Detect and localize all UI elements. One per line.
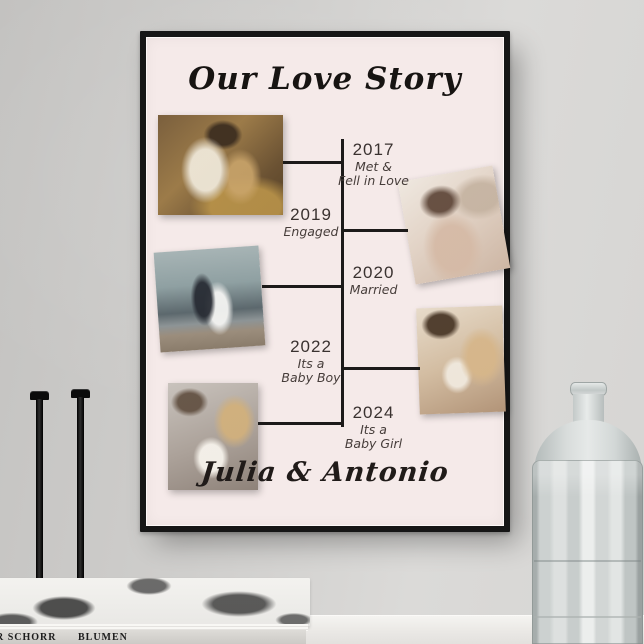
glass-bottle: [532, 382, 644, 644]
book-cover-ink-pattern: [0, 578, 310, 626]
timeline-entry-2019: 2019 Engaged: [261, 205, 361, 239]
couple-names: Julia & Antonio: [144, 457, 505, 488]
timeline-year: 2020: [326, 263, 421, 283]
candle-stem: [77, 397, 84, 591]
love-story-poster: Our Love Story 2017 Met & Fell in Love 2…: [146, 37, 504, 526]
timeline-year: 2019: [261, 205, 361, 225]
timeline-entry-2022: 2022 Its a Baby Boy: [261, 337, 361, 385]
timeline-entry-2024: 2024 Its a Baby Girl: [326, 403, 421, 451]
photo-2022-baby-kiss: [416, 306, 506, 415]
timeline-entry-2017: 2017 Met & Fell in Love: [326, 140, 421, 188]
timeline-caption: Married: [326, 283, 421, 297]
candle-stem: [36, 399, 43, 585]
timeline-year: 2024: [326, 403, 421, 423]
timeline-caption: Baby Boy: [261, 371, 361, 385]
timeline-caption: Its a: [261, 357, 361, 371]
timeline-year: 2022: [261, 337, 361, 357]
timeline-entry-2020: 2020 Married: [326, 263, 421, 297]
timeline-caption: Fell in Love: [326, 174, 421, 188]
poster-mockup-scene: Our Love Story 2017 Met & Fell in Love 2…: [0, 0, 644, 644]
book-spine: R SCHORR BLUMEN: [0, 630, 306, 644]
timeline-caption: Its a: [326, 423, 421, 437]
poster-title: Our Love Story: [146, 61, 504, 97]
bottle-table-reflection: [534, 616, 641, 618]
timeline-caption: Met &: [326, 160, 421, 174]
photo-2020-wedding-pier: [154, 245, 266, 352]
book-spine-author-text: R SCHORR: [0, 632, 57, 643]
book-spine-title-text: BLUMEN: [78, 632, 128, 643]
timeline-caption: Baby Girl: [326, 437, 421, 451]
bottle-facet-line: [534, 560, 641, 562]
timeline-caption: Engaged: [261, 225, 361, 239]
poster-frame: Our Love Story 2017 Met & Fell in Love 2…: [140, 31, 510, 532]
photo-2017-autumn-couple: [158, 115, 283, 215]
timeline-year: 2017: [326, 140, 421, 160]
